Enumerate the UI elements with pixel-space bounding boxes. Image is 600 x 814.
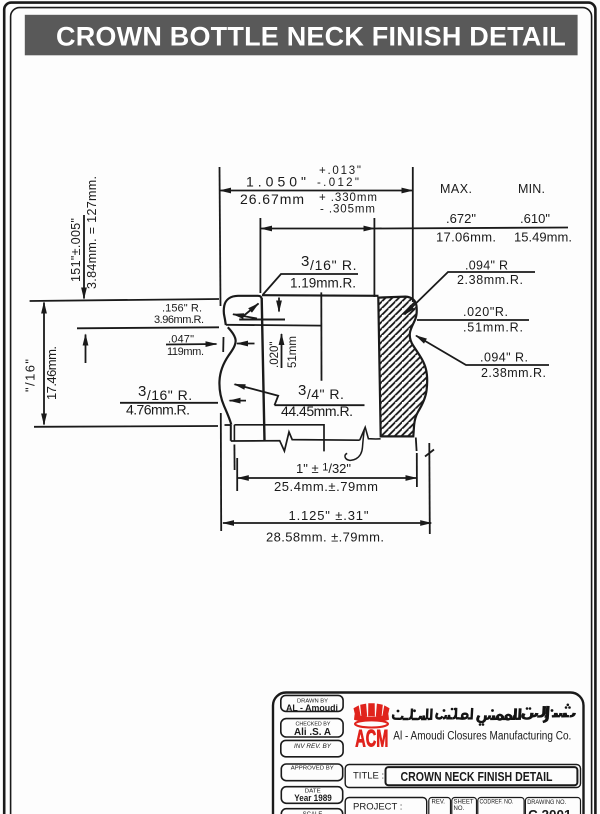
svg-text:3/16" R.: 3/16" R. [138, 383, 193, 403]
svg-text:1.125" ±.31": 1.125" ±.31" [289, 508, 369, 523]
svg-text:4.76mm.R.: 4.76mm.R. [126, 402, 190, 418]
svg-text:25.4mm.±.79mm: 25.4mm.±.79mm [274, 479, 378, 494]
svg-text:3.84mm. = 127mm.: 3.84mm. = 127mm. [85, 176, 99, 289]
svg-text:CODREF. NO.: CODREF. NO. [480, 800, 514, 806]
svg-text:17.06mm.: 17.06mm. [436, 230, 496, 245]
svg-text:1" ± 1/32": 1" ± 1/32" [296, 461, 351, 476]
svg-text:2.38mm.R.: 2.38mm.R. [457, 273, 523, 287]
svg-text:AL - Amoudi: AL - Amoudi [286, 703, 338, 714]
svg-text:51mm: 51mm [287, 336, 299, 368]
svg-text:3/16" R.: 3/16" R. [301, 253, 357, 273]
svg-text:+.013": +.013" [319, 165, 361, 177]
svg-text:1.19mm.R.: 1.19mm.R. [290, 276, 356, 291]
svg-text:MIN.: MIN. [518, 182, 545, 196]
svg-text:PROJECT :: PROJECT : [353, 802, 402, 813]
svg-text:15.49mm.: 15.49mm. [514, 230, 572, 245]
svg-text:MAX.: MAX. [440, 182, 472, 196]
svg-text:DRAWING NO.: DRAWING NO. [527, 799, 566, 806]
svg-text:SHEET: SHEET [454, 800, 474, 806]
svg-text:.047": .047" [168, 334, 194, 346]
svg-text:"/16": "/16" [23, 359, 38, 392]
svg-text:26.67mm: 26.67mm [240, 191, 304, 207]
svg-text:-.012": -.012" [317, 177, 359, 189]
svg-text:C 2001: C 2001 [528, 808, 572, 814]
svg-text:ACM: ACM [355, 725, 388, 752]
svg-text:Year 1989: Year 1989 [294, 793, 332, 804]
svg-text:.156" R.: .156" R. [162, 303, 202, 315]
svg-text:APPROVED BY: APPROVED BY [291, 765, 334, 771]
svg-text:17.46mm.: 17.46mm. [44, 346, 59, 400]
svg-text:28.58mm. ±.79mm.: 28.58mm. ±.79mm. [266, 530, 384, 545]
svg-text:NO.: NO. [454, 806, 465, 812]
svg-text:REV.: REV. [432, 800, 446, 806]
svg-text:3.96mm.R.: 3.96mm.R. [154, 314, 204, 326]
svg-text:.672": .672" [446, 211, 476, 226]
svg-text:1.050": 1.050" [246, 174, 306, 190]
svg-text:44.45mm.R.: 44.45mm.R. [281, 403, 353, 419]
svg-text:.020": .020" [269, 342, 281, 368]
svg-text:Ali .S. A: Ali .S. A [294, 726, 331, 738]
svg-text:+ .330mm: + .330mm [319, 192, 377, 204]
svg-text:2.38mm.R.: 2.38mm.R. [481, 366, 546, 380]
svg-text:Al - Amoudi Closures Manufactu: Al - Amoudi Closures Manufacturing Co. [393, 731, 571, 743]
svg-text:119mm.: 119mm. [167, 346, 204, 358]
svg-text:TITLE :: TITLE : [353, 771, 384, 782]
svg-text:3/4" R.: 3/4" R. [298, 382, 344, 402]
svg-text:CROWN BOTTLE NECK FINISH DETAI: CROWN BOTTLE NECK FINISH DETAIL [56, 22, 566, 52]
svg-text:INV REV. BY: INV REV. BY [294, 743, 332, 750]
svg-text:.51mm.R.: .51mm.R. [463, 321, 523, 335]
svg-text:.094" R.: .094" R. [480, 351, 528, 365]
svg-text:CROWN NECK FINISH DETAIL: CROWN NECK FINISH DETAIL [401, 769, 553, 784]
svg-text:151"±.005": 151"±.005" [69, 218, 83, 282]
svg-text:.020"R.: .020"R. [463, 305, 508, 319]
svg-text:- .305mm: - .305mm [320, 204, 375, 216]
svg-text:.094" R: .094" R [465, 259, 508, 273]
svg-text:.610": .610" [520, 211, 550, 226]
